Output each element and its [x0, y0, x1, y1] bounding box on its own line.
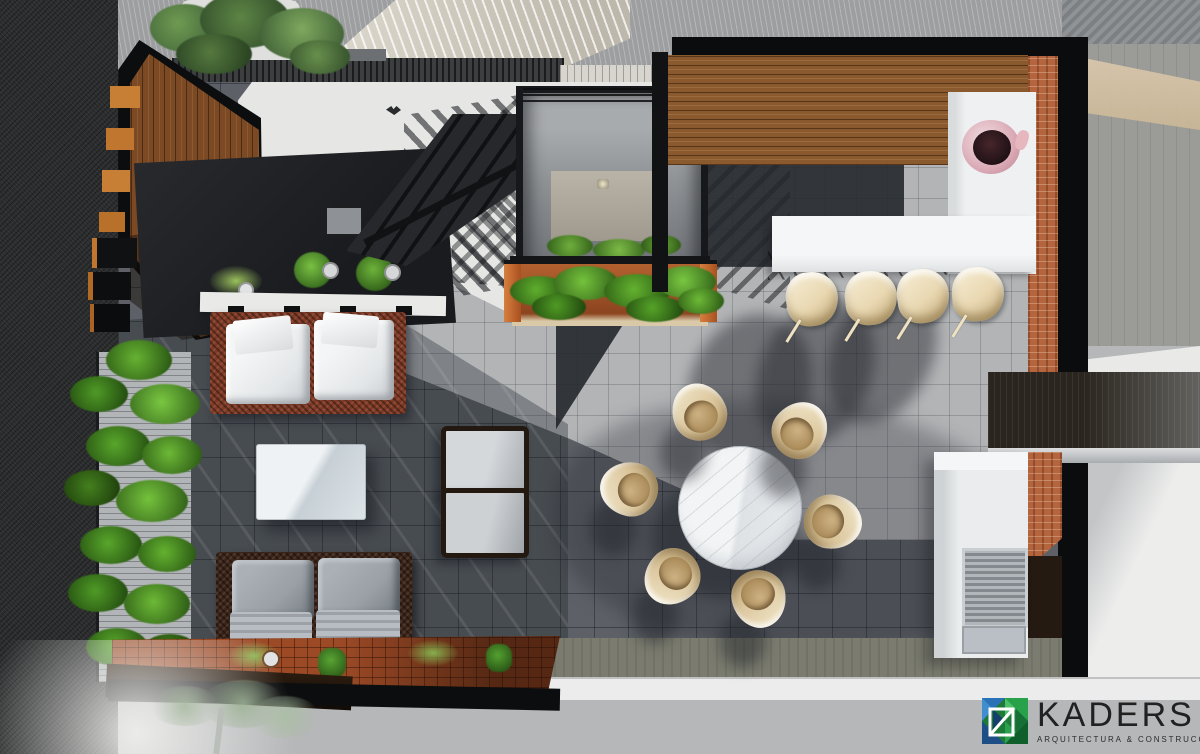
plant-pot — [322, 262, 339, 279]
driveway — [1085, 452, 1200, 696]
terrace-wall-top — [672, 37, 1062, 58]
vertical-garden — [46, 340, 226, 690]
step-block — [92, 238, 137, 268]
pergola-fascia — [652, 52, 668, 292]
bar-counter-front — [772, 216, 1036, 272]
grill-counter-top — [934, 452, 1028, 470]
sofa-back-cushion — [318, 558, 400, 618]
lounge-chair — [441, 488, 529, 558]
grill-lower-drawer — [962, 626, 1026, 654]
grill-drawers — [962, 548, 1028, 628]
lounge-chair — [441, 426, 529, 496]
wall-sconce-icon — [597, 179, 609, 189]
logo-icon — [982, 698, 1028, 744]
chair-seat — [615, 470, 652, 509]
cactus-pot — [486, 644, 512, 672]
logo-tagline: ARQUITECTURA & CONSTRUCCIÓN — [1037, 735, 1200, 744]
side-gate-wood — [988, 372, 1200, 452]
chair-seat — [774, 411, 820, 457]
sofa-back-cushion — [232, 560, 314, 620]
logo-brand: KADERS — [1037, 698, 1200, 732]
fence-post-amber — [106, 128, 134, 150]
logo-text: KADERS ARQUITECTURA & CONSTRUCCIÓN — [1037, 698, 1200, 744]
fence-post-amber — [99, 212, 125, 232]
kaders-logo: KADERS ARQUITECTURA & CONSTRUCCIÓN — [982, 698, 1200, 744]
coffee-table — [256, 444, 366, 520]
fence-post-amber — [102, 170, 130, 192]
fern-foliage — [506, 258, 722, 324]
chair-seat — [738, 575, 778, 613]
chair-seat — [810, 502, 846, 540]
step-block — [88, 272, 131, 300]
render-canvas: KADERS ARQUITECTURA & CONSTRUCCIÓN — [0, 0, 1200, 754]
sofa-pillow — [232, 315, 293, 355]
skylight — [325, 206, 363, 236]
step-block — [90, 304, 130, 332]
spider-plant — [408, 640, 458, 666]
chair-seat — [652, 550, 699, 597]
faded-palm-tree — [130, 680, 320, 754]
sofa-pillow — [321, 312, 380, 349]
fence-post-amber — [110, 86, 140, 108]
stairwell-plants — [547, 235, 593, 257]
plant-pot — [384, 264, 401, 281]
decor-bowl-contents — [973, 130, 1011, 165]
chair-seat — [679, 395, 723, 438]
terrace-wall-right — [1058, 37, 1088, 695]
